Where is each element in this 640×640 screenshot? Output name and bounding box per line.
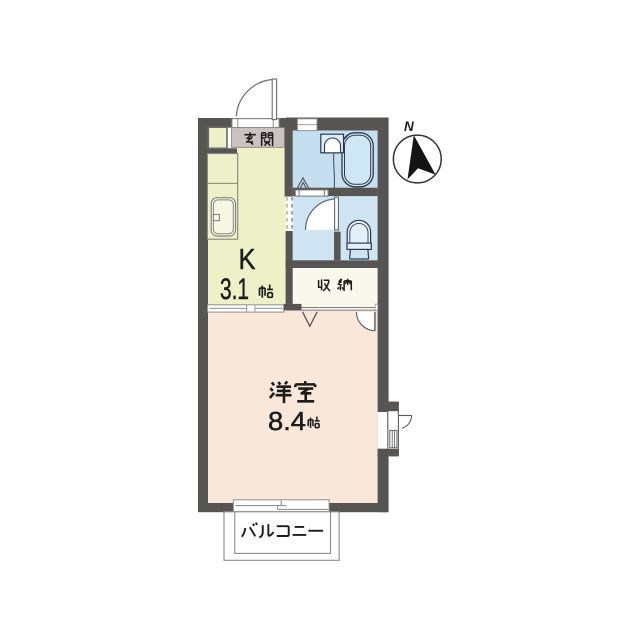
svg-text:8.4: 8.4 (268, 408, 306, 436)
svg-text:K: K (239, 244, 257, 276)
svg-text:N: N (404, 119, 414, 134)
svg-text:3.1: 3.1 (220, 273, 249, 306)
